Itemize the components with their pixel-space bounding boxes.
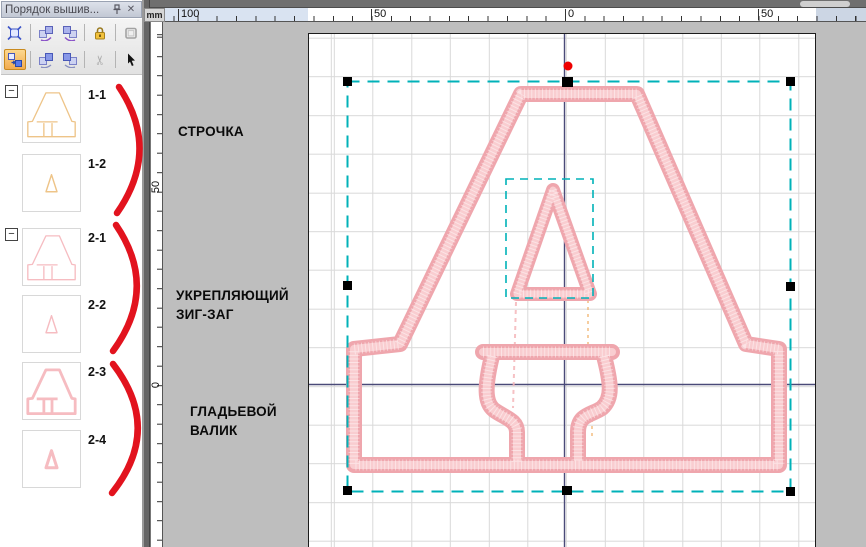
- annotation-label-valik: ГЛАДЬЕВОЙ ВАЛИК: [190, 402, 277, 440]
- toolbar-separator: [30, 51, 31, 68]
- annotation-text: УКРЕПЛЯЮЩИЙ: [176, 286, 289, 305]
- toolbar-separator: [115, 51, 116, 68]
- sequence-thumbnail-2-4[interactable]: [22, 430, 81, 488]
- annotation-text: ВАЛИК: [190, 421, 277, 440]
- pin-icon[interactable]: [110, 3, 124, 16]
- resequence-button[interactable]: [4, 49, 26, 70]
- hoop-button[interactable]: [120, 22, 142, 43]
- panel-toolbar: ✂: [1, 19, 142, 75]
- thumbnail-label: 1-1: [88, 88, 106, 102]
- ruler-label: 50: [761, 8, 773, 21]
- window-top-strip: [143, 0, 866, 8]
- sequence-list: − − 1-1 1-2 2-1 2-2 2-3: [1, 76, 142, 547]
- panel-title: Порядок вышив...: [5, 4, 110, 16]
- scrollbar-fragment: [800, 1, 850, 7]
- ruler-unit-box: mm: [144, 8, 165, 22]
- sequence-forward-button[interactable]: [59, 49, 81, 70]
- annotation-text: СТРОЧКА: [178, 122, 244, 141]
- thumbnail-label: 1-2: [88, 157, 106, 171]
- thumbnail-label: 2-1: [88, 231, 106, 245]
- sequence-panel: Порядок вышив... ✕: [0, 0, 143, 547]
- annotation-label-strochka: СТРОЧКА: [178, 122, 244, 141]
- rotate-back-button[interactable]: [35, 22, 57, 43]
- sequence-thumbnail-2-2[interactable]: [22, 295, 81, 353]
- thumbnail-label: 2-4: [88, 433, 106, 447]
- panel-splitter[interactable]: [143, 0, 150, 547]
- thumbnail-label: 2-3: [88, 365, 106, 379]
- toolbar-separator: [84, 24, 85, 41]
- ruler-label: 50: [374, 8, 386, 21]
- cut-button[interactable]: ✂: [89, 49, 111, 70]
- annotation-label-zigzag: УКРЕПЛЯЮЩИЙ ЗИГ-ЗАГ: [176, 286, 289, 324]
- lock-button[interactable]: [89, 22, 111, 43]
- sequence-thumbnail-1-2[interactable]: [22, 154, 81, 212]
- ruler-label: 0: [150, 376, 164, 394]
- ruler-label: 0: [568, 8, 574, 21]
- rotate-forward-button[interactable]: [59, 22, 81, 43]
- close-icon[interactable]: ✕: [124, 3, 138, 16]
- toolbar-separator: [115, 24, 116, 41]
- fit-selection-button[interactable]: [4, 22, 26, 43]
- ruler-label: 100: [181, 8, 199, 21]
- annotation-text: ГЛАДЬЕВОЙ: [190, 402, 277, 421]
- pointer-button[interactable]: [120, 49, 142, 70]
- group-2-expander[interactable]: −: [5, 228, 18, 241]
- panel-title-bar[interactable]: Порядок вышив... ✕: [1, 1, 142, 18]
- ruler-label: 50: [150, 178, 164, 196]
- ruler-horizontal: 100 50 0 50: [165, 8, 866, 22]
- design-canvas[interactable]: [308, 33, 816, 547]
- toolbar-separator: [30, 24, 31, 41]
- sequence-thumbnail-2-1[interactable]: [22, 228, 81, 286]
- ruler-ticks: [157, 22, 162, 547]
- group-1-expander[interactable]: −: [5, 85, 18, 98]
- embroidery-app-window: mm 100 50 0 50 50 0: [0, 0, 866, 547]
- scissors-icon: ✂: [92, 54, 108, 65]
- ruler-vertical: 50 0: [150, 22, 163, 547]
- sequence-thumbnail-1-1[interactable]: [22, 85, 81, 143]
- thumbnail-label: 2-2: [88, 298, 106, 312]
- toolbar-separator: [84, 51, 85, 68]
- annotation-text: ЗИГ-ЗАГ: [176, 305, 289, 324]
- sequence-thumbnail-2-3[interactable]: [22, 362, 81, 420]
- sequence-back-button[interactable]: [35, 49, 57, 70]
